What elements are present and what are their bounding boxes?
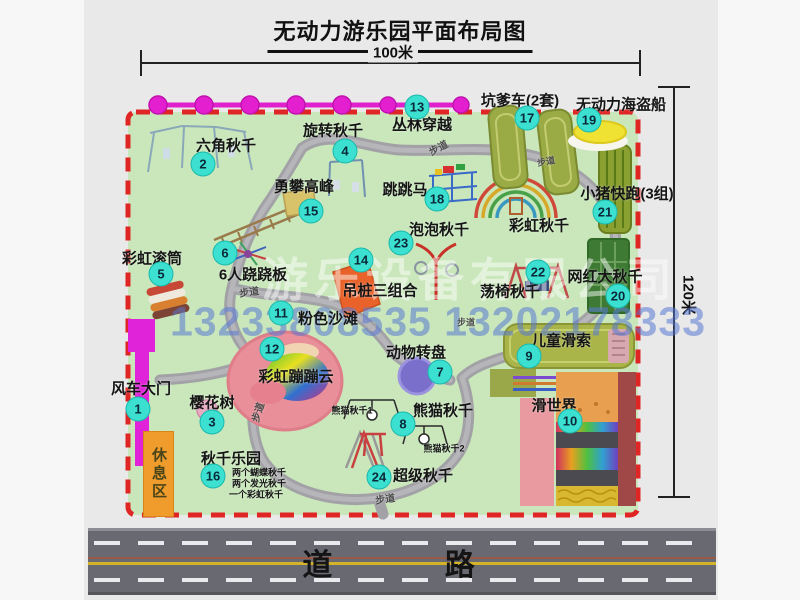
item-badge-11: 11 [269,301,294,326]
path-label: 步道 [374,489,396,507]
item-badge-1: 1 [126,397,151,422]
item-badge-4: 4 [333,139,358,164]
item-badge-12: 12 [260,337,285,362]
item-label-1: 风车大门 [111,378,171,399]
equip-label-rainbow-swing: 彩虹秋千 [509,215,569,236]
item-badge-22: 22 [526,260,551,285]
item-label-14: 吊桩三组合 [342,280,417,301]
item-badge-17: 17 [515,106,540,131]
item-label-11: 粉色沙滩 [298,308,358,329]
item-label-21: 小猪快跑(3组) [580,183,673,204]
item-badge-13: 13 [405,95,430,120]
item-badge-18: 18 [425,187,450,212]
item-label-8: 熊猫秋千 [413,400,473,421]
item-badge-14: 14 [349,248,374,273]
item-badge-9: 9 [517,344,542,369]
item-badge-2: 2 [191,152,216,177]
equip-sublabel-panda-2: 熊猫秋千2 [423,442,464,455]
item-badge-5: 5 [149,262,174,287]
item-label-18: 跳跳马 [382,179,427,200]
item-label-24: 超级秋千 [393,465,453,486]
path-label: 步道 [536,153,556,169]
item-badge-16: 16 [201,464,226,489]
item-badge-21: 21 [593,200,618,225]
path-label: 步道 [247,400,267,424]
item-badge-7: 7 [428,360,453,385]
item-label-9: 儿童滑索 [531,330,591,351]
item-badge-15: 15 [299,199,324,224]
item-label-15: 勇攀高峰 [274,176,334,197]
item-badge-19: 19 [577,108,602,133]
item-badge-8: 8 [391,412,416,437]
item-label-22: 荡椅秋千 [480,281,540,302]
item-badge-23: 23 [389,231,414,256]
path-label: 步道 [457,316,475,329]
item-badge-10: 10 [558,409,583,434]
item-label-20: 网红大秋千 [567,266,642,287]
map-labels-overlay: 风车大门1六角秋千2樱花树3旋转秋千4彩虹滚筒56人跷跷板6动物转盘7熊猫秋千8… [0,0,800,600]
swing-note-3: 一个彩虹秋千 [229,488,283,501]
equip-sublabel-panda-1: 熊猫秋千1 [331,404,372,417]
item-label-6: 6人跷跷板 [219,264,287,285]
item-label-12: 彩虹蹦蹦云 [258,366,333,387]
item-badge-20: 20 [606,284,631,309]
screenshot-page: 无动力游乐园平面布局图 100米 120米 [0,0,800,600]
item-badge-3: 3 [200,410,225,435]
path-label: 步道 [238,282,260,300]
item-badge-6: 6 [213,241,238,266]
path-label: 步道 [426,136,451,159]
item-label-4: 旋转秋千 [303,120,363,141]
item-label-23: 泡泡秋千 [409,219,469,240]
item-badge-24: 24 [367,465,392,490]
